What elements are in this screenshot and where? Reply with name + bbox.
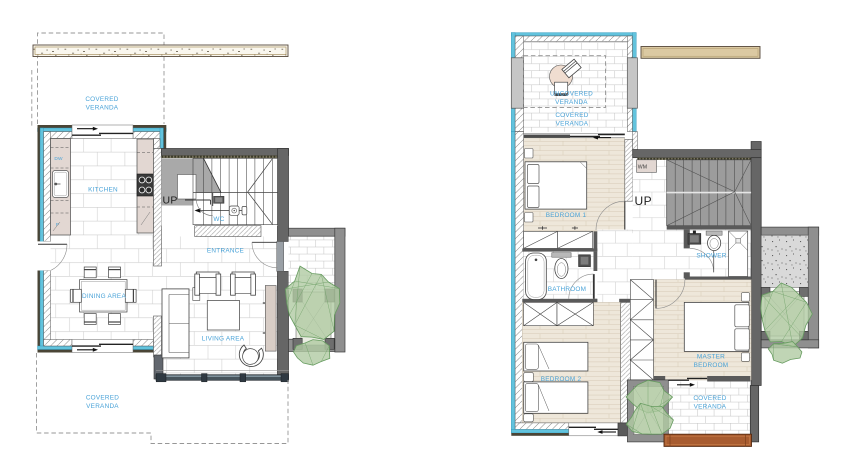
svg-text:BEDROOM 2: BEDROOM 2 <box>541 376 582 383</box>
svg-text:VERANDA: VERANDA <box>556 121 589 128</box>
svg-text:COVERED: COVERED <box>85 96 118 103</box>
svg-text:KITCHEN: KITCHEN <box>88 187 118 194</box>
svg-text:LIVING AREA: LIVING AREA <box>202 336 245 343</box>
svg-text:UP: UP <box>635 194 652 208</box>
svg-text:BEDROOM 1: BEDROOM 1 <box>546 212 587 219</box>
svg-text:UP: UP <box>163 195 178 207</box>
svg-text:ENTRANCE: ENTRANCE <box>207 248 244 255</box>
svg-text:DINING AREA: DINING AREA <box>82 293 126 300</box>
svg-text:WC: WC <box>213 216 224 223</box>
svg-text:VERANDA: VERANDA <box>555 99 588 106</box>
svg-text:COVERED: COVERED <box>693 395 726 402</box>
svg-text:COVERED: COVERED <box>555 112 588 119</box>
svg-text:VERANDA: VERANDA <box>86 105 119 112</box>
svg-text:UNCOVERED: UNCOVERED <box>550 91 593 98</box>
svg-text:COVERED: COVERED <box>86 395 119 402</box>
svg-text:BEDROOM: BEDROOM <box>694 362 729 369</box>
svg-text:VERANDA: VERANDA <box>694 404 727 411</box>
svg-text:MASTER: MASTER <box>697 354 725 361</box>
svg-text:DW: DW <box>54 156 63 162</box>
svg-text:VERANDA: VERANDA <box>86 403 119 410</box>
svg-text:SHOWER: SHOWER <box>696 253 726 260</box>
svg-text:WM: WM <box>638 164 647 170</box>
svg-text:BATHROOM: BATHROOM <box>548 286 586 293</box>
